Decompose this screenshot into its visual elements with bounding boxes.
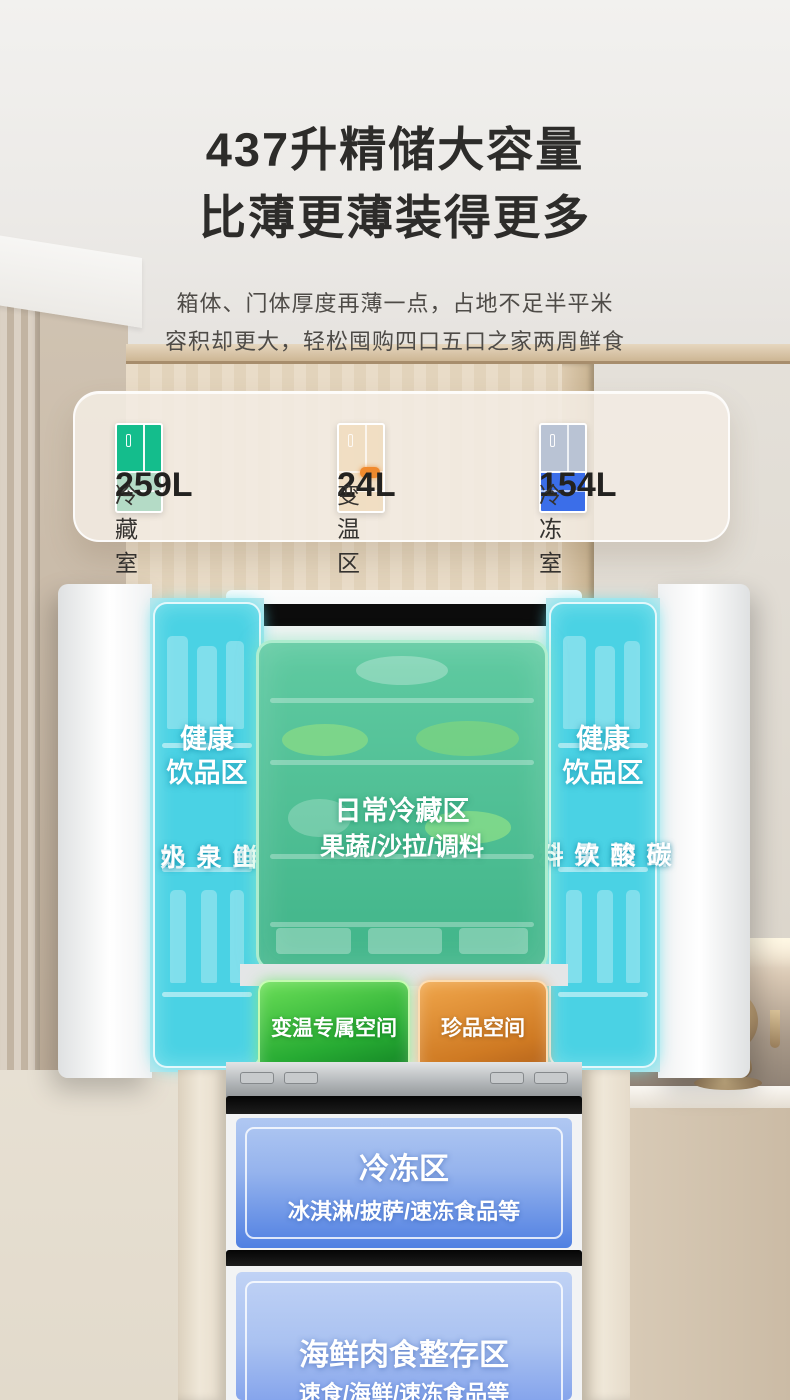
capacity-label: 冷冻室 <box>539 476 562 578</box>
food-greens-shape <box>416 721 519 757</box>
bottle-shape <box>626 890 641 982</box>
product-detail-page: 437升精储大容量 比薄更薄装得更多 箱体、门体厚度再薄一点，占地不足半平米 容… <box>0 0 790 1400</box>
bottle-shape <box>201 890 218 982</box>
bottle-shape <box>197 646 218 729</box>
seafood-zone-overlay: 海鲜肉食整存区 速食/海鲜/速冻食品等 <box>236 1272 572 1400</box>
main-zone-title: 日常冷藏区 <box>259 789 545 828</box>
bottle-shape <box>597 890 614 982</box>
right-door-title-line1: 健康 <box>551 722 655 756</box>
side-panel-left <box>178 1070 226 1400</box>
drawer-gap-band <box>226 1096 582 1116</box>
storage-box-shape <box>368 928 442 954</box>
shelf-line <box>162 992 251 997</box>
freezer-zone-title: 冷冻区 <box>236 1144 572 1188</box>
page-description: 箱体、门体厚度再薄一点，占地不足半平米 容积却更大，轻松囤购四口五口之家两周鲜食 <box>0 285 790 361</box>
main-zone-overlay: 日常冷藏区 果蔬/沙拉/调料 <box>256 640 548 970</box>
left-door-outer-edge <box>58 584 152 1078</box>
side-panel-right <box>582 1070 630 1400</box>
bottle-shape <box>595 646 616 729</box>
bottle-shape <box>167 636 188 728</box>
premium-zone-label: 珍品空间 <box>441 1012 525 1042</box>
bottle-shape <box>226 641 245 729</box>
fridge-top-gap <box>246 604 562 626</box>
description-line1: 箱体、门体厚度再薄一点，占地不足半平米 <box>0 285 790 323</box>
variable-zone-box: 变温专属空间 <box>258 980 410 1074</box>
shelf-line <box>558 992 647 997</box>
page-title-line2: 比薄更薄装得更多 <box>0 184 790 252</box>
left-door-title-line1: 健康 <box>155 722 259 756</box>
right-door-title-line2: 饮品区 <box>551 756 655 790</box>
under-counter-cabinet <box>628 1108 790 1400</box>
shelf-line <box>270 922 533 927</box>
right-door-face: 健康 饮品区 鲜榨果汁 碳酸饮料 <box>546 598 660 1072</box>
freezer-zone-overlay: 冷冻区 冰淇淋/披萨/速冻食品等 <box>236 1118 572 1248</box>
icon-door-handle <box>126 434 131 447</box>
right-door-outer-edge <box>658 584 750 1078</box>
left-door-title-line2: 饮品区 <box>155 756 259 790</box>
right-door-zone-title: 健康 饮品区 <box>551 722 655 790</box>
main-zone-subtitle: 果蔬/沙拉/调料 <box>259 827 545 863</box>
capacity-card: 259L 冷藏室 24L 变温区 <box>73 391 730 542</box>
left-door-overlay: 健康 饮品区 鲜牛奶 山泉水 <box>153 602 261 1068</box>
bottom-hinge-left <box>284 1072 318 1084</box>
shelf-line <box>270 698 533 703</box>
bottle-shape <box>624 641 641 729</box>
curtain <box>0 292 40 1092</box>
bottle-shape <box>566 890 583 982</box>
bottom-hinge-right <box>534 1072 568 1084</box>
capacity-label: 变温区 <box>337 476 360 578</box>
seafood-zone-subtitle: 速食/海鲜/速冻食品等 <box>236 1376 572 1400</box>
left-door-face: 健康 饮品区 鲜牛奶 山泉水 <box>150 598 264 1072</box>
left-door-zone-title: 健康 饮品区 <box>155 722 259 790</box>
right-door-overlay: 健康 饮品区 鲜榨果汁 碳酸饮料 <box>549 602 657 1068</box>
freezer-zone-subtitle: 冰淇淋/披萨/速冻食品等 <box>236 1194 572 1226</box>
bottom-hinge-right <box>490 1072 524 1084</box>
premium-zone-box: 珍品空间 <box>418 980 548 1074</box>
food-cake-shape <box>356 656 448 685</box>
fridge-base-band <box>226 1062 582 1100</box>
seafood-zone-title: 海鲜肉食整存区 <box>236 1330 572 1374</box>
left-door-column-water: 山泉水 <box>153 844 261 884</box>
storage-box-shape <box>276 928 350 954</box>
description-line2: 容积却更大，轻松囤购四口五口之家两周鲜食 <box>0 323 790 361</box>
bottom-hinge-left <box>240 1072 274 1084</box>
icon-door-handle <box>550 434 555 447</box>
bottle-shape <box>170 890 187 982</box>
food-greens-shape <box>282 724 368 756</box>
bottle-shape <box>563 636 586 728</box>
capacity-label: 冷藏室 <box>115 476 138 578</box>
shelf-line <box>270 760 533 765</box>
storage-box-shape <box>459 928 528 954</box>
ornament-foot <box>694 1076 762 1090</box>
ornament-drip <box>770 1010 780 1048</box>
variable-zone-label: 变温专属空间 <box>271 1012 397 1042</box>
page-title: 437升精储大容量 比薄更薄装得更多 <box>0 116 790 252</box>
left-lower-cabinet <box>0 1070 182 1400</box>
page-title-line1: 437升精储大容量 <box>0 116 790 184</box>
right-door-column-soda: 碳酸饮料 <box>531 842 675 882</box>
icon-door-handle <box>348 434 353 447</box>
